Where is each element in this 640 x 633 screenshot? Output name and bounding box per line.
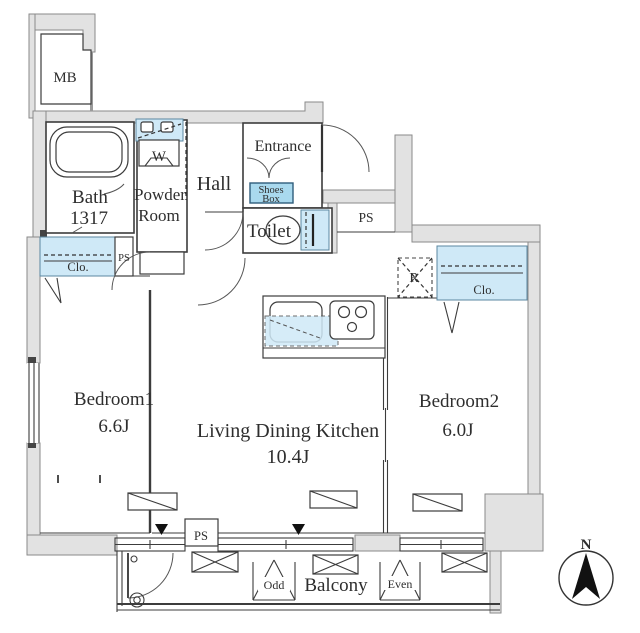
ldk-window xyxy=(218,538,353,551)
stove-burner xyxy=(356,307,367,318)
pillar-mark xyxy=(28,357,36,364)
hall-door-arc xyxy=(205,212,243,250)
label-clo2: Clo. xyxy=(473,283,494,297)
label-balcony: Balcony xyxy=(304,575,368,596)
washer-tap xyxy=(141,122,153,132)
balcony-door-arc xyxy=(128,553,173,598)
wall-right-outer xyxy=(528,242,540,500)
label-powder-1: Powder xyxy=(134,185,186,204)
furniture-marks xyxy=(58,475,462,511)
wall-left-upper xyxy=(33,111,46,237)
label-shoes-2: Box xyxy=(262,194,280,205)
bedroom2-window xyxy=(400,538,483,551)
toilet-tank-blue xyxy=(301,210,329,250)
label-bedroom1: Bedroom1 xyxy=(74,389,154,410)
compass xyxy=(559,551,613,605)
closet1-folding-door xyxy=(45,278,61,303)
label-bath-size: 1317 xyxy=(70,208,108,229)
label-bedroom2-size: 6.0J xyxy=(442,420,473,441)
label-ps-top: PS xyxy=(358,210,373,225)
label-mb: MB xyxy=(53,70,76,86)
meter-box xyxy=(41,34,91,104)
wall-window-stub xyxy=(355,535,400,551)
balcony-drain-inner xyxy=(134,597,140,603)
bedroom1-window xyxy=(115,538,185,551)
label-bedroom2: Bedroom2 xyxy=(419,391,499,412)
label-entrance: Entrance xyxy=(255,138,312,155)
closet2-folding-door xyxy=(444,302,459,333)
label-bedroom1-size: 6.6J xyxy=(98,416,129,437)
label-fridge: R xyxy=(409,271,419,286)
kitchen-sink-area-blue xyxy=(265,316,338,346)
bathtub-inner xyxy=(56,132,122,172)
stove-burner xyxy=(339,307,350,318)
floor-plan-drawing: MB Bath 1317 W Powder Room Hall Entrance… xyxy=(0,0,640,633)
label-ldk: Living Dining Kitchen xyxy=(197,420,379,442)
stove-burner xyxy=(348,323,357,332)
label-clo1: Clo. xyxy=(67,260,88,274)
label-washer: W xyxy=(152,149,167,165)
label-compass-north: N xyxy=(581,537,592,553)
label-powder-2: Room xyxy=(138,206,180,225)
label-ps-left: PS xyxy=(118,253,130,264)
floor-plan-page: MB Bath 1317 W Powder Room Hall Entrance… xyxy=(0,0,640,633)
kitchen-stove xyxy=(330,301,374,339)
label-hall: Hall xyxy=(197,173,232,195)
label-bath: Bath xyxy=(72,187,108,208)
label-odd: Odd xyxy=(264,578,285,592)
balcony-hatch-boxes xyxy=(192,552,487,574)
wall-right-strip xyxy=(395,135,412,232)
wall-mid-right-band xyxy=(323,190,397,203)
wall-top-right-band xyxy=(412,225,540,242)
meter-box-outline xyxy=(41,34,91,104)
door-stopper xyxy=(131,556,137,562)
label-toilet: Toilet xyxy=(247,221,292,242)
wall-left-mid xyxy=(27,237,40,363)
washer-tap xyxy=(161,122,173,132)
wall-left-strip-upper xyxy=(29,14,35,118)
wall-bottom-left xyxy=(27,535,117,555)
label-ps-bottom: PS xyxy=(194,529,208,543)
ldk-door-arc xyxy=(198,258,245,305)
wall-bottom-right-block xyxy=(485,494,543,551)
label-ldk-size: 10.4J xyxy=(267,446,310,468)
entrance-door-arc xyxy=(322,125,369,172)
label-even: Even xyxy=(388,577,413,591)
vanity-counter xyxy=(140,252,184,274)
